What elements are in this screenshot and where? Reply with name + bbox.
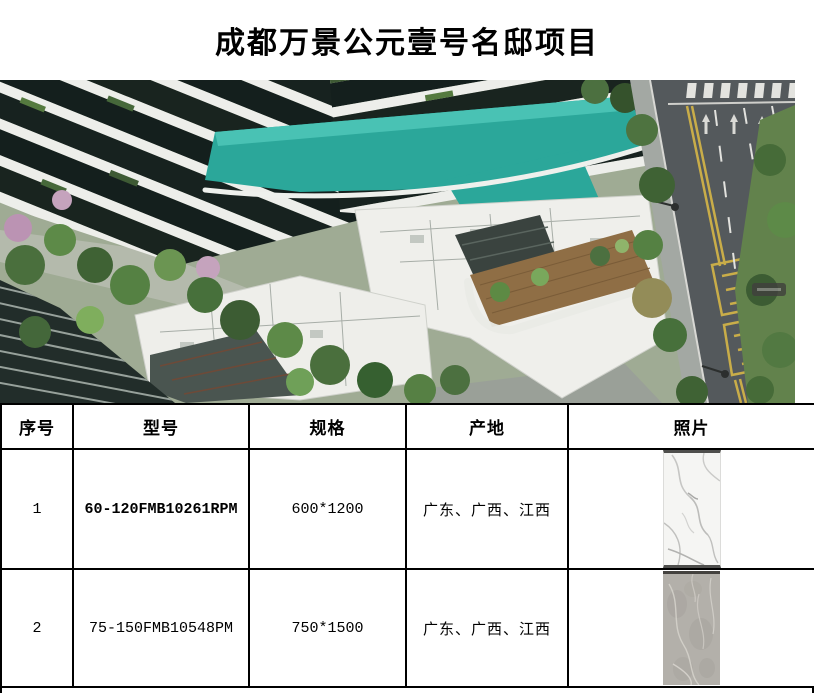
title-bar: 成都万景公元壹号名邸项目 [0, 0, 814, 80]
cell-photo [568, 449, 814, 569]
column-header-spec: 规格 [249, 404, 406, 449]
column-header-photo: 照片 [568, 404, 814, 449]
column-header-no: 序号 [1, 404, 73, 449]
cell-photo [568, 569, 814, 687]
table-row: 1 60-120FMB10261RPM 600*1200 广东、广西、江西 [1, 449, 814, 569]
product-table: 序号 型号 规格 产地 照片 1 60-120FMB10261RPM 600*1… [0, 403, 814, 688]
cell-spec: 750*1500 [249, 569, 406, 687]
aerial-render-image [0, 80, 814, 403]
cell-model: 60-120FMB10261RPM [73, 449, 249, 569]
cell-no: 1 [1, 449, 73, 569]
cell-origin: 广东、广西、江西 [406, 449, 568, 569]
cell-model: 75-150FMB10548PM [73, 569, 249, 687]
photo-gray-marble-tile [663, 571, 720, 685]
column-header-model: 型号 [73, 404, 249, 449]
photo-white-marble-tile [663, 450, 721, 568]
page-title: 成都万景公元壹号名邸项目 [215, 18, 599, 62]
table-header-row: 序号 型号 规格 产地 照片 [1, 404, 814, 449]
aerial-render-svg [0, 80, 795, 403]
cell-spec: 600*1200 [249, 449, 406, 569]
cell-no: 2 [1, 569, 73, 687]
cell-origin: 广东、广西、江西 [406, 569, 568, 687]
watermark [752, 283, 786, 296]
column-header-origin: 产地 [406, 404, 568, 449]
table-row: 2 75-150FMB10548PM 750*1500 广东、广西、江西 [1, 569, 814, 687]
